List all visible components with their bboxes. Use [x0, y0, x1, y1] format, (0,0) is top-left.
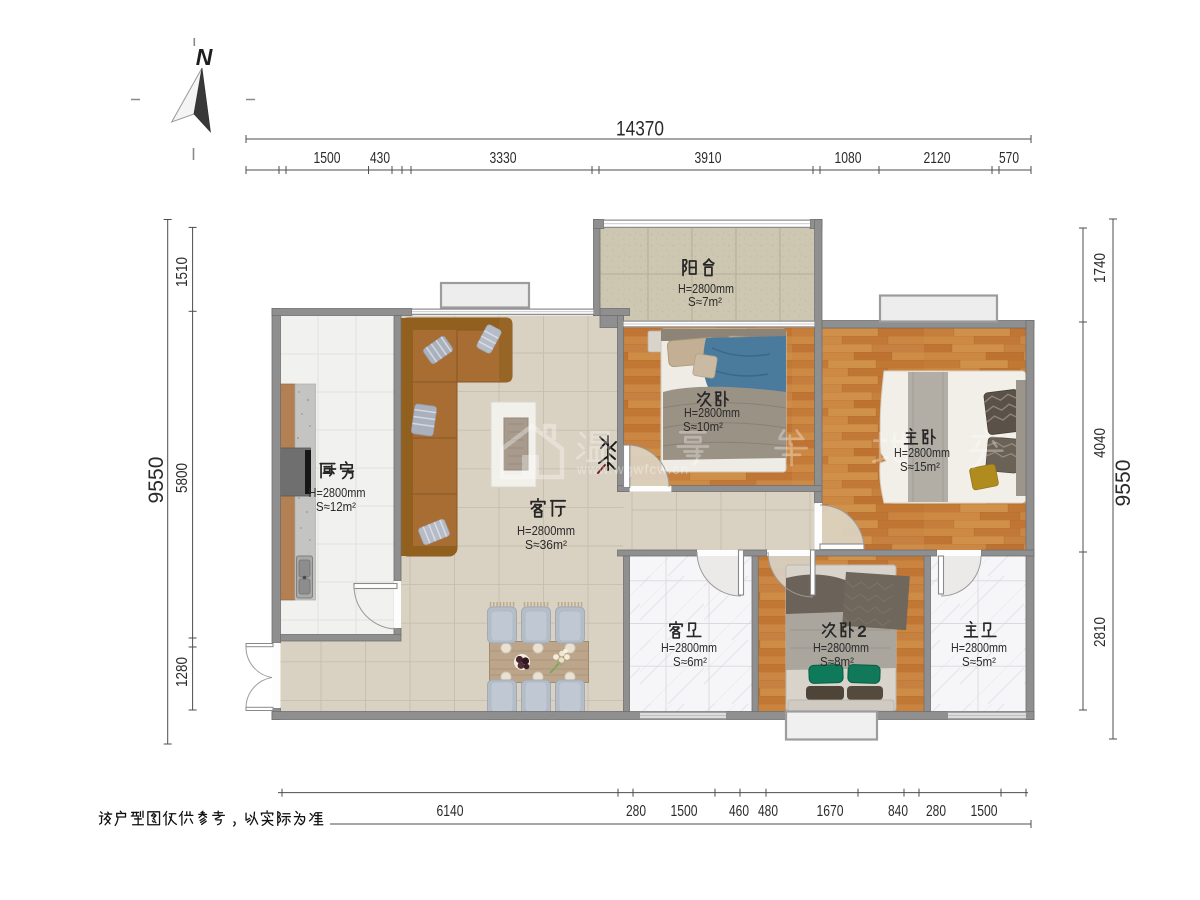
svg-text:H=2800mm: H=2800mm: [894, 446, 950, 460]
svg-text:H=2800mm: H=2800mm: [661, 641, 717, 655]
svg-text:14370: 14370: [616, 118, 664, 141]
svg-text:2810: 2810: [1092, 617, 1109, 647]
svg-text:1740: 1740: [1092, 253, 1109, 283]
svg-text:S≈36m²: S≈36m²: [525, 537, 568, 552]
svg-text:S≈7m²: S≈7m²: [688, 295, 722, 309]
svg-text:1080: 1080: [835, 150, 862, 167]
svg-text:S≈15m²: S≈15m²: [900, 460, 940, 474]
svg-text:280: 280: [926, 803, 946, 820]
svg-text:H=2800mm: H=2800mm: [813, 641, 869, 655]
svg-text:1500: 1500: [671, 803, 698, 820]
svg-text:480: 480: [758, 803, 778, 820]
svg-text:6140: 6140: [437, 803, 464, 820]
svg-text:1670: 1670: [817, 803, 844, 820]
svg-text:H=2800mm: H=2800mm: [309, 485, 366, 500]
svg-text:H=2800mm: H=2800mm: [517, 523, 575, 538]
svg-text:4040: 4040: [1092, 428, 1109, 458]
svg-text:H=2800mm: H=2800mm: [684, 406, 740, 420]
svg-text:H=2800mm: H=2800mm: [951, 641, 1007, 655]
svg-text:570: 570: [999, 150, 1019, 167]
svg-text:9550: 9550: [1112, 460, 1135, 507]
svg-text:www.wgwfcw.cn: www.wgwfcw.cn: [576, 462, 689, 477]
svg-text:460: 460: [729, 803, 749, 820]
svg-text:840: 840: [888, 803, 908, 820]
svg-text:2: 2: [857, 622, 866, 641]
svg-text:5800: 5800: [174, 463, 191, 493]
svg-text:2120: 2120: [924, 150, 951, 167]
svg-text:430: 430: [370, 150, 390, 167]
svg-text:1510: 1510: [174, 257, 191, 287]
svg-text:S≈6m²: S≈6m²: [673, 655, 707, 669]
svg-text:N: N: [196, 44, 213, 70]
svg-text:S≈12m²: S≈12m²: [316, 499, 357, 514]
svg-text:S≈5m²: S≈5m²: [962, 655, 996, 669]
svg-text:9550: 9550: [145, 457, 168, 504]
svg-text:3910: 3910: [695, 150, 722, 167]
svg-text:1280: 1280: [174, 657, 191, 687]
svg-text:280: 280: [626, 803, 646, 820]
svg-text:1500: 1500: [971, 803, 998, 820]
svg-text:H=2800mm: H=2800mm: [678, 282, 734, 296]
svg-text:S≈8m²: S≈8m²: [820, 655, 854, 669]
svg-text:1500: 1500: [314, 150, 341, 167]
svg-text:3330: 3330: [490, 150, 517, 167]
svg-text:S≈10m²: S≈10m²: [683, 420, 723, 434]
